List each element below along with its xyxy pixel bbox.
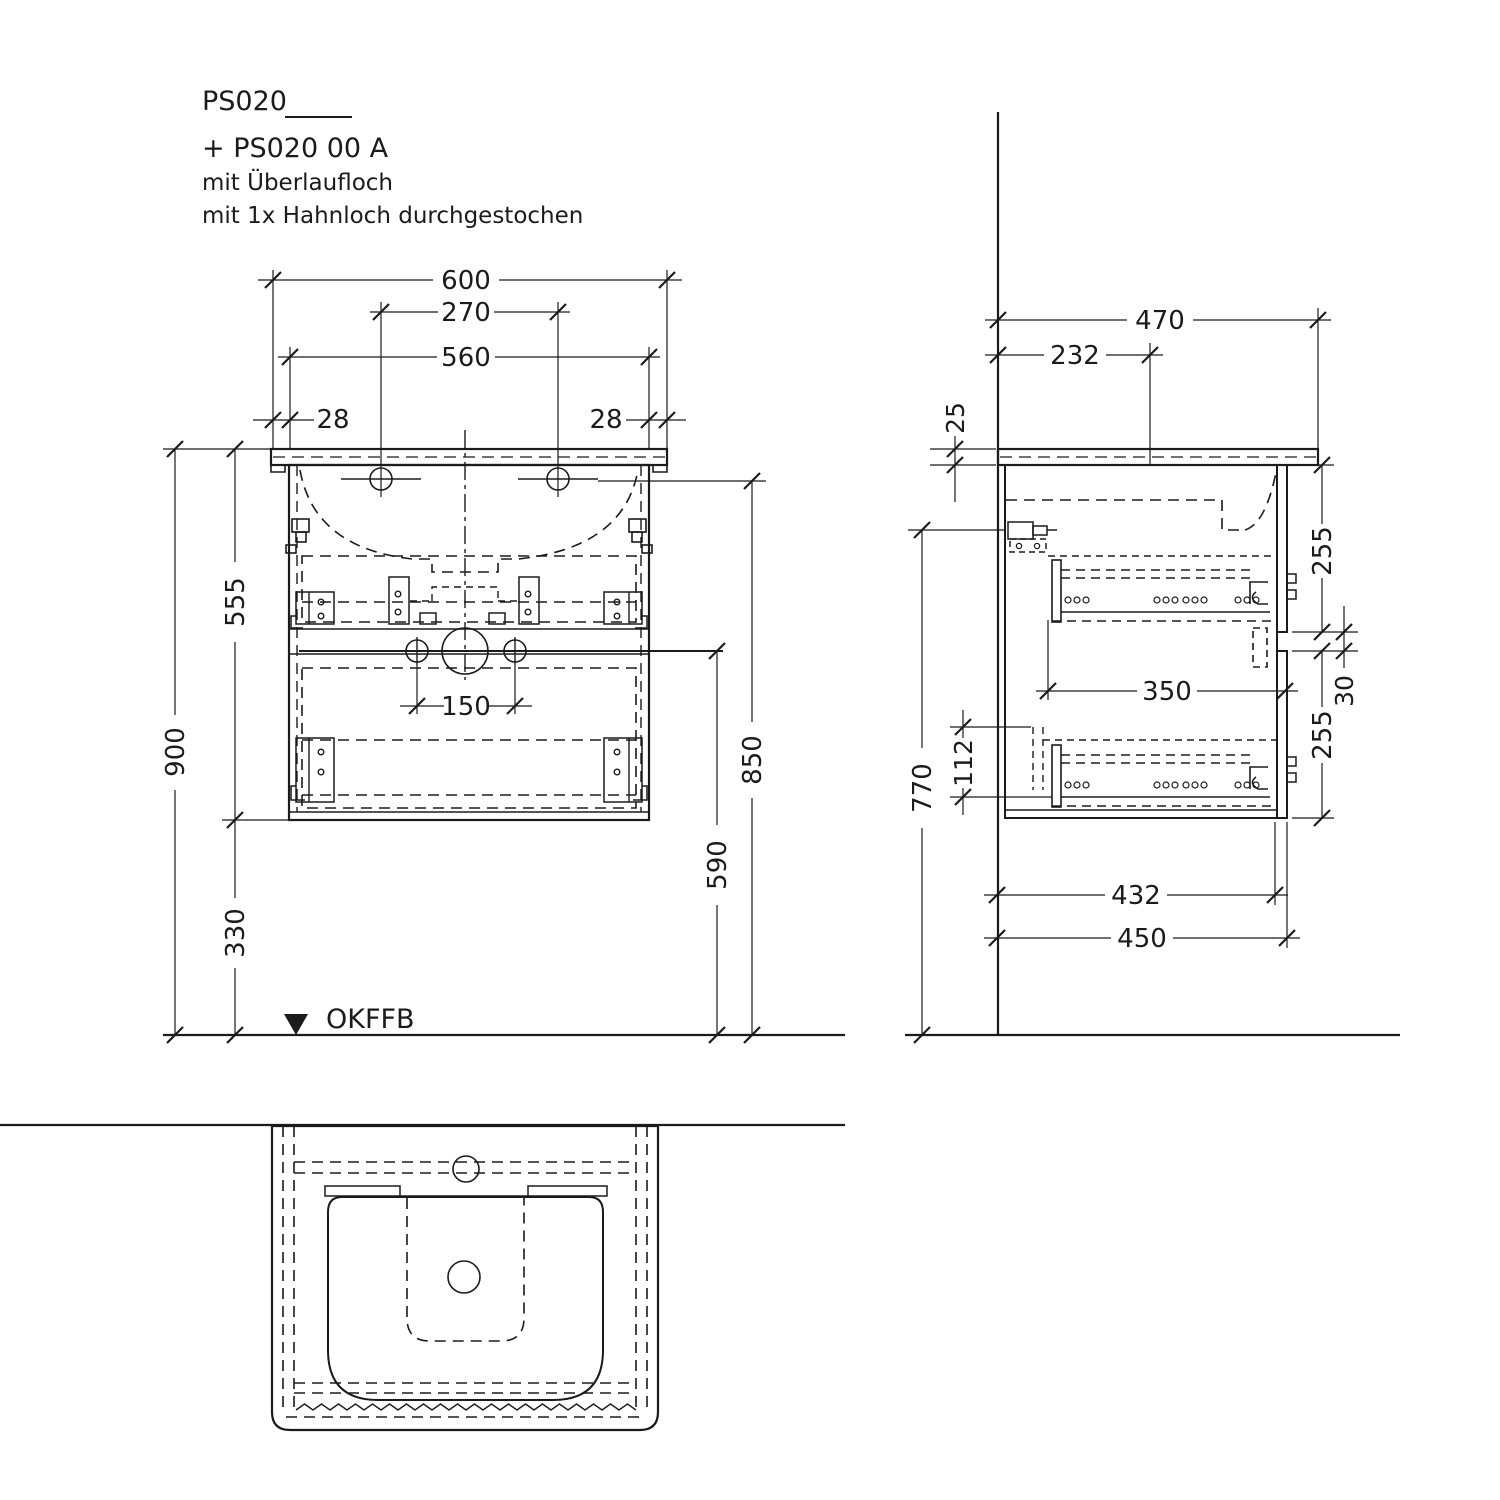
dim-total-height: 900 [161, 727, 191, 777]
dim-floor-clearance: 330 [221, 908, 251, 958]
plan-countertop [272, 1126, 658, 1430]
dim-hanger-height: 850 [738, 735, 768, 785]
dim-body-height: 555 [221, 577, 251, 627]
vanity-dimension-drawing: PS020 + PS020 00 A mit Überlaufloch mit … [0, 0, 1500, 1500]
dim-upper-front-height: 255 [1308, 526, 1338, 576]
front-lower-drawer [291, 668, 647, 808]
dim-lower-clearance: 112 [949, 739, 978, 787]
dim-tap-spacing: 270 [441, 298, 491, 328]
dim-overhang-left: 28 [316, 405, 349, 435]
floor-reference-marker [284, 1014, 308, 1035]
dim-lower-front-height: 255 [1308, 710, 1338, 760]
dim-total-width: 600 [441, 266, 491, 296]
plan-washbasin [328, 1197, 603, 1400]
plan-view [0, 1125, 845, 1430]
side-wall-bracket [1008, 522, 1057, 552]
title-block: PS020 + PS020 00 A mit Überlaufloch mit … [202, 86, 583, 229]
front-cabinet-body [289, 465, 649, 820]
note-overflow: mit Überlaufloch [202, 168, 393, 196]
side-dimensions: 470 232 25 255 30 255 770 112 350 [908, 306, 1359, 1043]
dim-body-width: 560 [441, 343, 491, 373]
side-basin-profile [1006, 468, 1277, 530]
front-mounting-screws [341, 468, 598, 490]
side-countertop [998, 449, 1318, 465]
dim-tap-depth: 232 [1050, 341, 1100, 371]
product-code: PS020 [202, 86, 287, 117]
drain-hole [448, 1261, 480, 1293]
front-upper-drawer [291, 556, 647, 628]
front-countertop [271, 449, 667, 472]
dim-front-gap: 30 [1330, 675, 1359, 707]
tap-hole [453, 1156, 479, 1182]
dim-side-hanger-height: 770 [908, 763, 938, 813]
front-view: OKFFB [163, 430, 845, 1035]
product-code-suffix: + PS020 00 A [202, 133, 389, 164]
note-tap-hole: mit 1x Hahnloch durchgestochen [202, 203, 583, 229]
dim-total-depth: 470 [1135, 306, 1185, 336]
plan-cabinet-hidden-edges [283, 1126, 647, 1417]
side-upper-drawer [1048, 556, 1296, 622]
dim-outlet-spacing: 150 [441, 692, 491, 722]
front-middle-rail [289, 628, 723, 674]
dim-top-thickness: 25 [941, 402, 970, 434]
plan-mounting-bar [325, 1186, 607, 1196]
side-cabinet-body [1005, 465, 1287, 818]
plan-seal-strip [296, 1404, 636, 1410]
side-drawer-gap-recess [1253, 628, 1267, 667]
plan-basin-bottom [407, 1198, 524, 1341]
dim-drawer-depth: 350 [1142, 677, 1192, 707]
technical-drawing-page: PS020 + PS020 00 A mit Überlaufloch mit … [0, 0, 1500, 1500]
side-lower-drawer [1033, 727, 1296, 807]
floor-reference-label: OKFFB [326, 1004, 415, 1035]
dim-inner-depth: 432 [1111, 881, 1161, 911]
dim-outlet-height: 590 [703, 840, 733, 890]
dim-body-depth: 450 [1117, 924, 1167, 954]
dim-overhang-right: 28 [589, 405, 622, 435]
